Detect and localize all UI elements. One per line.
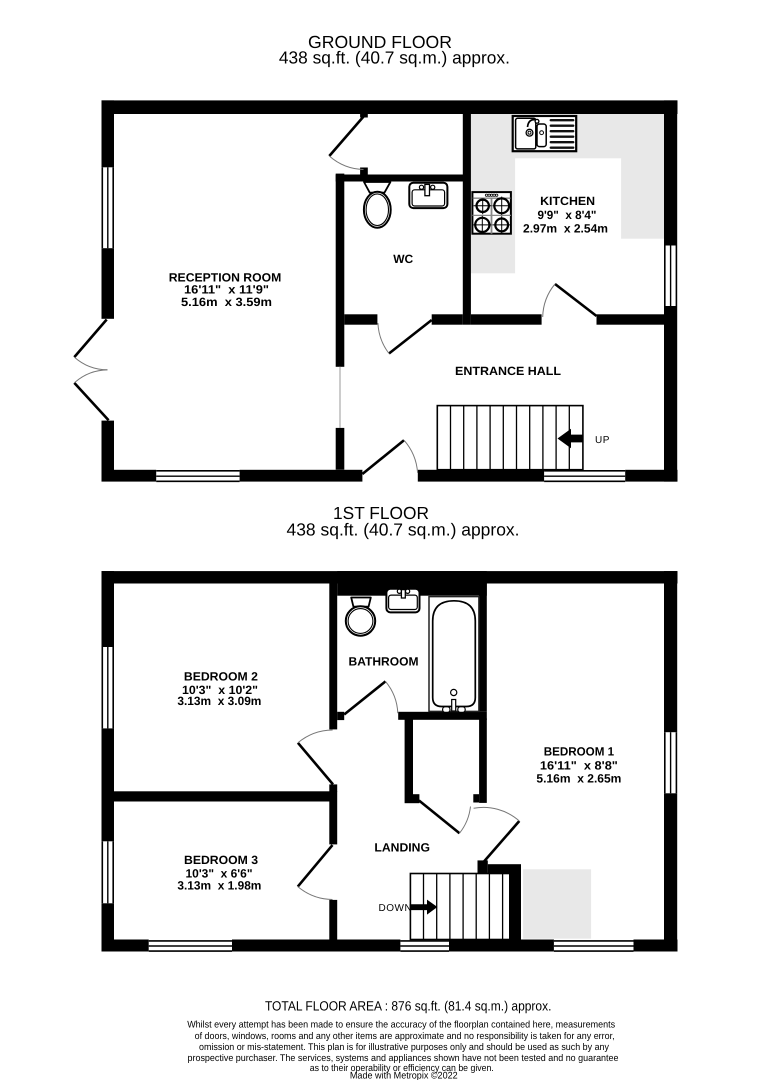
svg-text:omission or mis-statement. Thi: omission or mis-statement. This plan is … — [199, 1042, 609, 1053]
svg-text:of doors, windows, rooms and a: of doors, windows, rooms and any other i… — [195, 1031, 615, 1042]
svg-text:438 sq.ft. (40.7 sq.m.) approx: 438 sq.ft. (40.7 sq.m.) approx. — [287, 520, 520, 540]
svg-text:DOWN: DOWN — [379, 903, 413, 914]
svg-text:2.97m x 2.54m: 2.97m x 2.54m — [523, 222, 608, 236]
svg-text:438 sq.ft. (40.7 sq.m.) approx: 438 sq.ft. (40.7 sq.m.) approx. — [279, 48, 510, 68]
svg-text:5.16m x 2.65m: 5.16m x 2.65m — [536, 772, 621, 786]
svg-text:BEDROOM 1: BEDROOM 1 — [544, 745, 615, 759]
svg-text:5.16m x 3.59m: 5.16m x 3.59m — [181, 295, 272, 309]
svg-text:BATHROOM: BATHROOM — [349, 655, 419, 669]
svg-text:KITCHEN: KITCHEN — [540, 194, 595, 208]
svg-text:TOTAL FLOOR AREA : 876 sq.ft.: TOTAL FLOOR AREA : 876 sq.ft. (81.4 sq.m… — [265, 998, 552, 1013]
svg-text:3.13m x 1.98m: 3.13m x 1.98m — [177, 879, 261, 893]
svg-text:3.13m x 3.09m: 3.13m x 3.09m — [177, 694, 261, 708]
svg-text:16'11" x 8'8": 16'11" x 8'8" — [540, 759, 618, 773]
svg-text:9'9" x 8'4": 9'9" x 8'4" — [538, 208, 597, 222]
svg-text:LANDING: LANDING — [374, 841, 430, 855]
svg-text:WC: WC — [393, 252, 413, 266]
svg-text:16'11" x 11'9": 16'11" x 11'9" — [184, 282, 269, 296]
svg-text:ENTRANCE HALL: ENTRANCE HALL — [455, 364, 561, 378]
svg-text:Whilst every attempt has been: Whilst every attempt has been made to en… — [187, 1020, 615, 1031]
svg-text:BEDROOM 2: BEDROOM 2 — [184, 670, 258, 684]
svg-text:BEDROOM 3: BEDROOM 3 — [184, 853, 258, 867]
svg-text:UP: UP — [595, 435, 610, 446]
svg-text:Made with Metropix ©2022: Made with Metropix ©2022 — [350, 1070, 458, 1080]
